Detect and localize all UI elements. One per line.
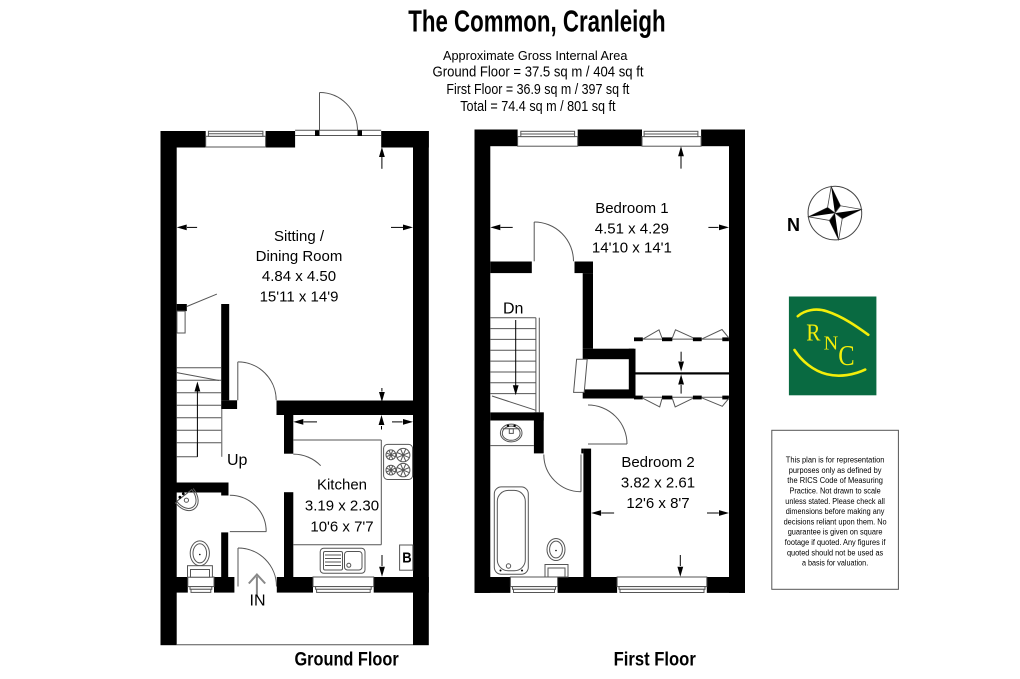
svg-text:unless stated. Please check al: unless stated. Please check all (785, 497, 885, 506)
svg-text:First Floor: First Floor (614, 650, 697, 671)
svg-text:4.51 x 4.29: 4.51 x 4.29 (595, 221, 669, 238)
svg-text:3.82 x 2.61: 3.82 x 2.61 (621, 475, 695, 492)
svg-text:guarantee is given on square: guarantee is given on square (788, 528, 883, 537)
svg-text:14'10 x 14'1: 14'10 x 14'1 (592, 240, 672, 257)
svg-text:the RICS Code of Measuring: the RICS Code of Measuring (787, 476, 883, 485)
svg-text:quoted should not be used as: quoted should not be used as (787, 548, 883, 557)
svg-text:Total = 74.4 sq m / 801 sq ft: Total = 74.4 sq m / 801 sq ft (460, 98, 616, 115)
svg-text:dimensions before making any: dimensions before making any (786, 507, 885, 516)
svg-text:Practice. Not drawn to scale: Practice. Not drawn to scale (789, 487, 881, 496)
svg-text:footage if quoted. Any figures: footage if quoted. Any figures if (785, 538, 886, 547)
svg-text:N: N (787, 215, 800, 235)
svg-text:This plan is for representatio: This plan is for representation (786, 456, 885, 465)
svg-text:Bedroom 2: Bedroom 2 (621, 454, 694, 471)
svg-text:Dining Room: Dining Room (256, 248, 343, 265)
svg-text:a basis for valuation.: a basis for valuation. (802, 559, 868, 568)
svg-text:Dn: Dn (503, 301, 523, 318)
svg-text:Bedroom 1: Bedroom 1 (595, 200, 668, 217)
svg-text:decisions reliant upon them. N: decisions reliant upon them. No (784, 517, 888, 526)
svg-text:B: B (402, 549, 412, 566)
svg-text:12'6 x 8'7: 12'6 x 8'7 (626, 495, 689, 512)
svg-text:The Common, Cranleigh: The Common, Cranleigh (408, 3, 665, 38)
svg-text:Sitting /: Sitting / (274, 228, 325, 245)
svg-text:N: N (824, 333, 839, 355)
svg-text:4.84 x 4.50: 4.84 x 4.50 (262, 268, 336, 285)
svg-text:R: R (806, 321, 820, 347)
svg-text:IN: IN (250, 593, 266, 610)
svg-text:Kitchen: Kitchen (317, 477, 367, 494)
svg-text:purposes only as defined by: purposes only as defined by (789, 466, 882, 475)
svg-text:Ground Floor: Ground Floor (294, 649, 399, 670)
svg-text:C: C (838, 341, 854, 372)
svg-text:First Floor = 36.9 sq m / 397: First Floor = 36.9 sq m / 397 sq ft (446, 81, 630, 98)
svg-text:Ground Floor = 37.5 sq m / 404: Ground Floor = 37.5 sq m / 404 sq ft (433, 64, 645, 81)
svg-text:15'11 x 14'9: 15'11 x 14'9 (260, 288, 339, 305)
svg-text:3.19 x 2.30: 3.19 x 2.30 (305, 498, 379, 515)
svg-text:10'6 x 7'7: 10'6 x 7'7 (310, 518, 373, 535)
svg-text:Approximate Gross Internal Are: Approximate Gross Internal Area (443, 48, 628, 63)
svg-text:Up: Up (227, 452, 248, 469)
